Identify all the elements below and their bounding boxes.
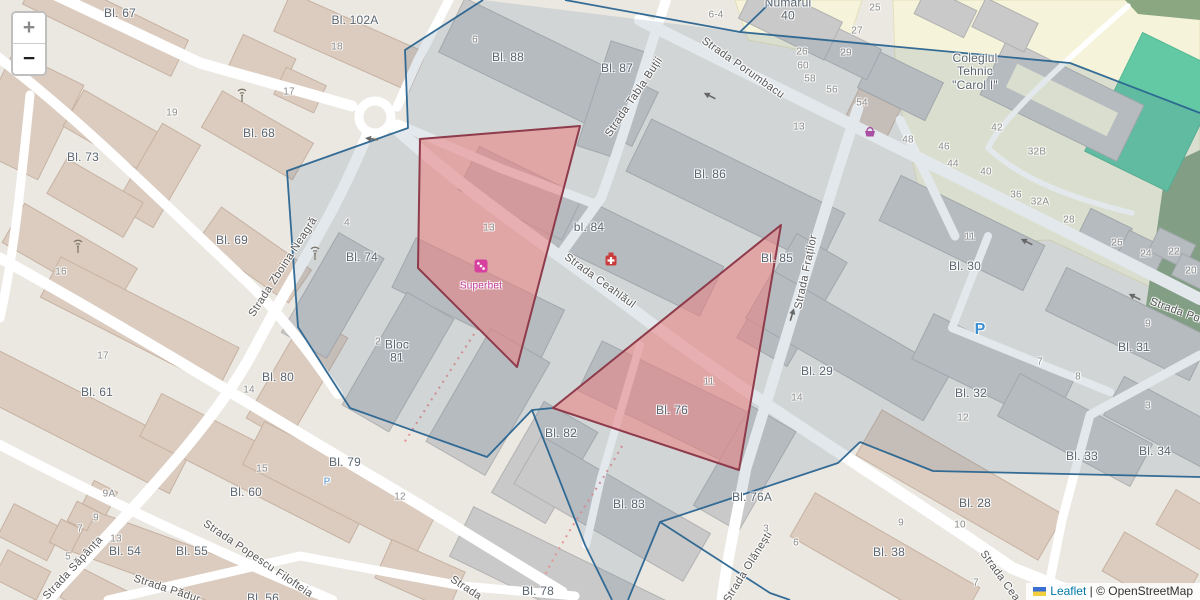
map-tiles [0,0,1200,600]
leaflet-link[interactable]: Leaflet [1050,584,1086,598]
attribution-bar: Leaflet | © OpenStreetMap [1026,583,1200,600]
zoom-in-button[interactable]: + [13,13,45,43]
attribution-separator: | [1090,584,1093,598]
zoom-control: + − [11,11,47,76]
zoom-out-button[interactable]: − [13,43,45,74]
ukraine-flag-icon [1033,587,1046,596]
openstreetmap-link[interactable]: © OpenStreetMap [1096,584,1193,598]
map-canvas[interactable]: Bl. 67 Bl. 102A Bl. 88 Bl. 87 Bl. 86 bl.… [0,0,1200,600]
superbet-icon [475,260,488,273]
